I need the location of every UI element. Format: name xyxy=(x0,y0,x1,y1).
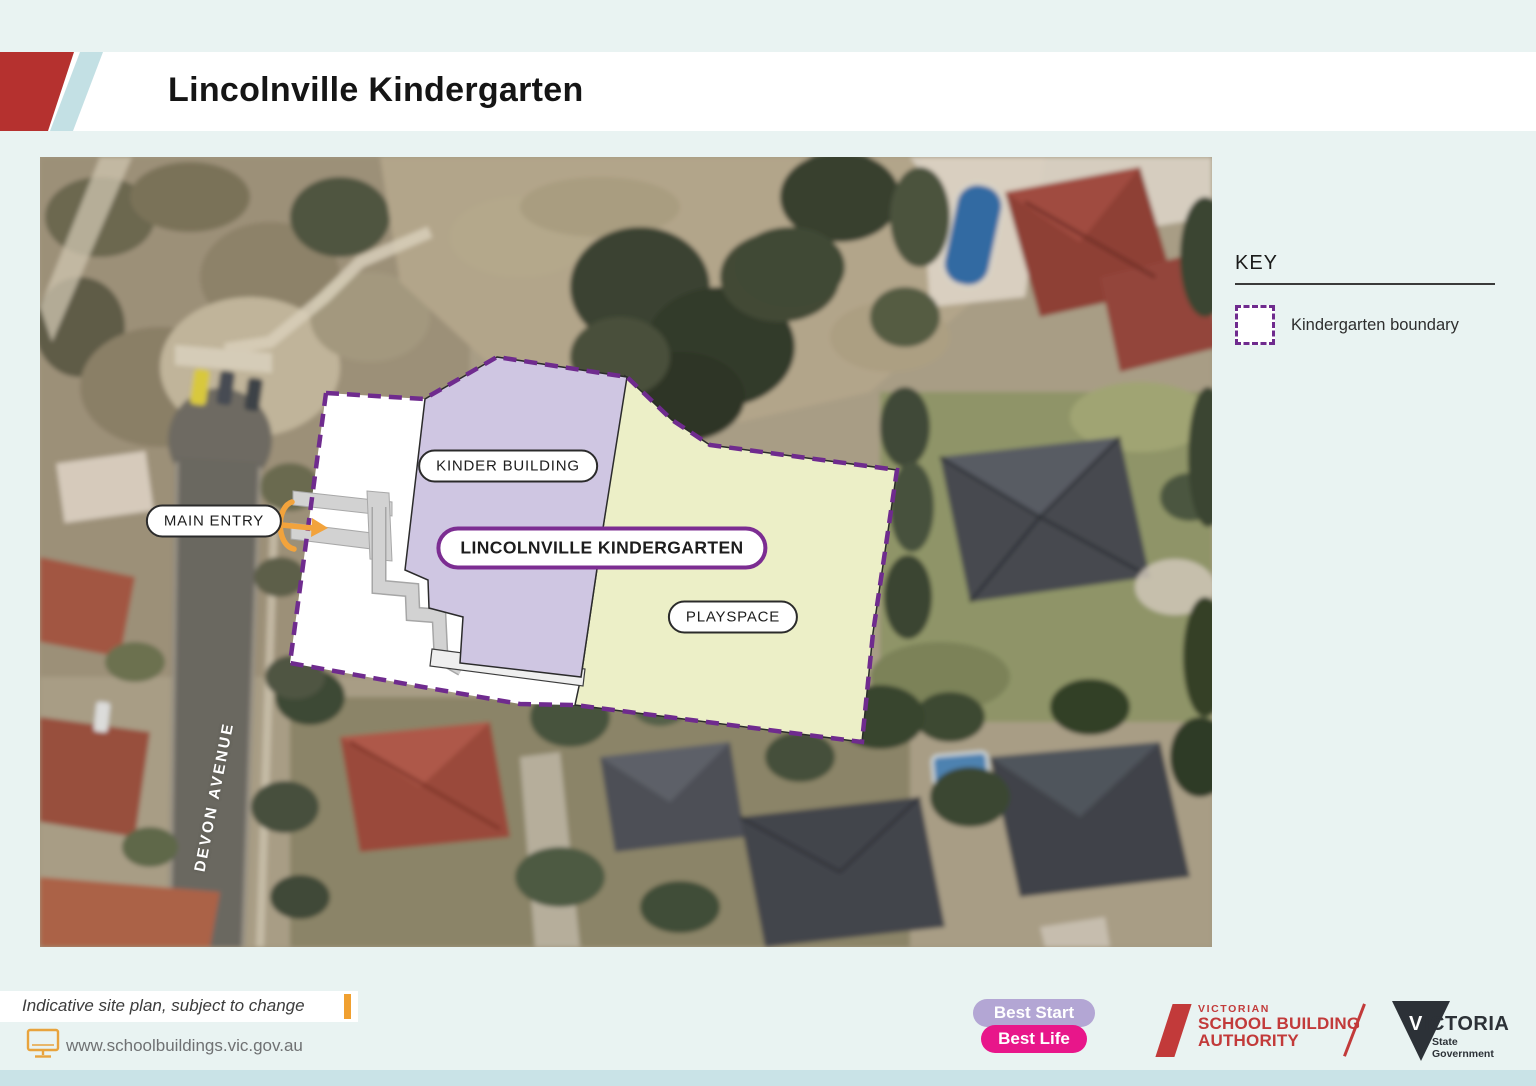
best-life-pill: Best Life xyxy=(981,1025,1087,1053)
site-plan-map: KINDER BUILDING LINCOLNVILLE KINDERGARTE… xyxy=(40,157,1212,947)
best-start-pill: Best Start xyxy=(973,999,1095,1027)
playspace-label-text: PLAYSPACE xyxy=(686,609,780,626)
kinder-building-label: KINDER BUILDING xyxy=(418,450,598,483)
main-entry-label: MAIN ENTRY xyxy=(146,505,282,538)
monitor-icon xyxy=(26,1028,62,1065)
victoria-sub2: Government xyxy=(1432,1048,1494,1060)
kindergarten-boundary-swatch xyxy=(1235,305,1275,345)
victoria-v: V xyxy=(1409,1013,1422,1036)
playspace-label: PLAYSPACE xyxy=(668,601,798,634)
victoria-subtitle: State Government xyxy=(1432,1036,1494,1060)
page-title: Lincolnville Kindergarten xyxy=(168,71,584,110)
victoria-state-government-logo: V ICTORIA State Government xyxy=(1392,1000,1512,1062)
main-entry-label-text: MAIN ENTRY xyxy=(164,513,264,530)
victoria-sub1: State xyxy=(1432,1036,1494,1048)
best-start-best-life-logo: Best Start Best Life xyxy=(973,999,1103,1059)
key-item-label: Kindergarten boundary xyxy=(1291,316,1459,335)
key-panel: KEY Kindergarten boundary xyxy=(1235,252,1495,345)
victoria-name: ICTORIA xyxy=(1424,1013,1509,1036)
vsba-line3: AUTHORITY xyxy=(1198,1032,1360,1049)
vsba-red-bar xyxy=(1155,1004,1191,1057)
kinder-building-label-text: KINDER BUILDING xyxy=(436,458,580,475)
key-title: KEY xyxy=(1235,252,1495,285)
disclaimer-text: Indicative site plan, subject to change xyxy=(22,996,305,1016)
bottom-teal-band xyxy=(0,1070,1536,1086)
header-band: Lincolnville Kindergarten xyxy=(0,52,1536,131)
school-building-authority-logo: VICTORIAN SCHOOL BUILDING AUTHORITY xyxy=(1150,1000,1370,1062)
disclaimer-accent-bar xyxy=(344,994,351,1019)
vsba-line2: SCHOOL BUILDING xyxy=(1198,1015,1360,1032)
site-name-label: LINCOLNVILLE KINDERGARTEN xyxy=(436,527,767,570)
website-link[interactable]: www.schoolbuildings.vic.gov.au xyxy=(66,1036,303,1056)
site-name-label-text: LINCOLNVILLE KINDERGARTEN xyxy=(460,538,743,558)
key-item-boundary: Kindergarten boundary xyxy=(1235,305,1495,345)
